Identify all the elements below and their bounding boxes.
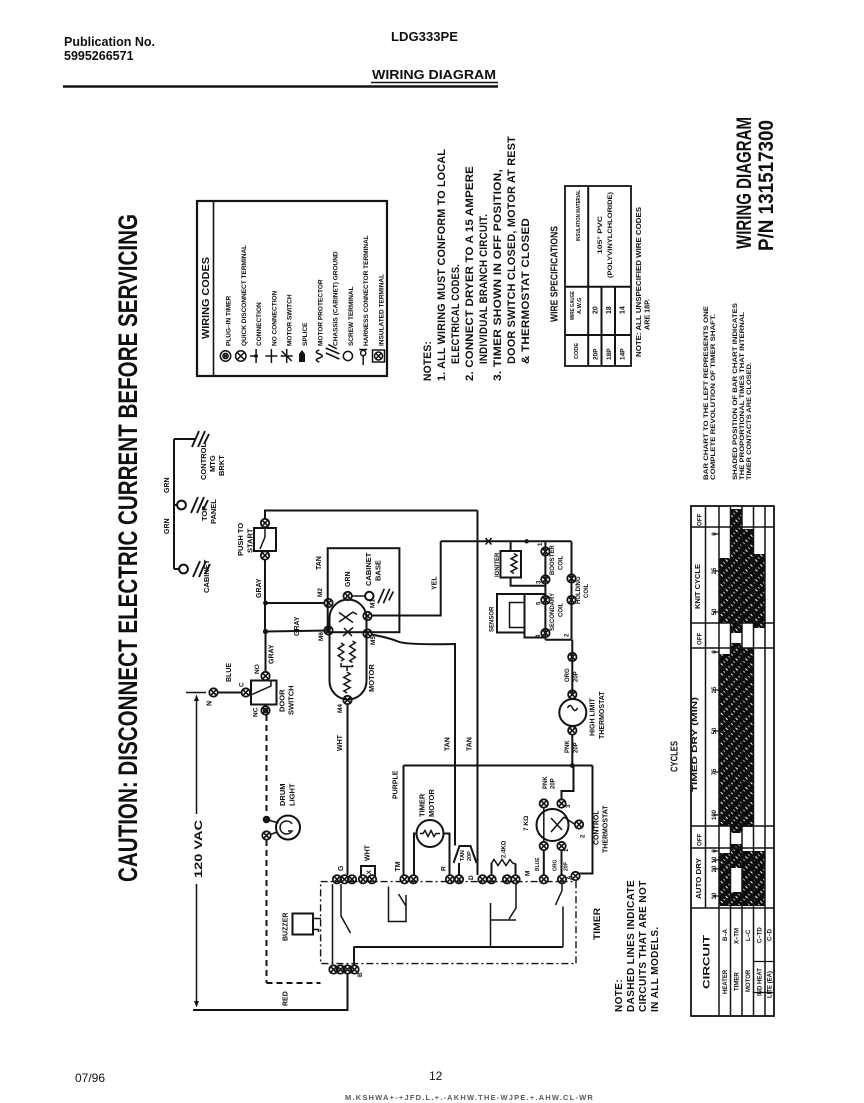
svg-text:HOLDING: HOLDING <box>576 576 582 604</box>
svg-text:HARNESS CONNECTOR TERMINAL: HARNESS CONNECTOR TERMINAL <box>363 235 370 346</box>
svg-text:A: A <box>567 875 574 880</box>
svg-text:M1: M1 <box>370 599 377 608</box>
svg-text:TIMER: TIMER <box>592 907 602 940</box>
svg-text:10: 10 <box>712 856 718 863</box>
svg-text:20P: 20P <box>574 742 580 753</box>
svg-text:BASE: BASE <box>374 560 383 581</box>
svg-text:TAN: TAN <box>467 737 474 751</box>
svg-text:MOTOR: MOTOR <box>746 969 752 992</box>
svg-text:PNK: PNK <box>543 776 549 789</box>
svg-text:20P: 20P <box>551 778 557 789</box>
svg-text:NOTE:: NOTE: <box>614 979 625 1012</box>
svg-text:20: 20 <box>712 865 718 872</box>
svg-text:BRKT: BRKT <box>217 455 226 476</box>
svg-text:R: R <box>441 866 448 871</box>
svg-text:DOOR: DOOR <box>278 689 287 712</box>
svg-text:NO: NO <box>254 664 261 674</box>
svg-text:MOTOR: MOTOR <box>427 789 436 817</box>
svg-text:INSULATED TERMINAL: INSULATED TERMINAL <box>379 274 386 346</box>
svg-text:14: 14 <box>620 306 627 314</box>
svg-text:20P: 20P <box>574 671 580 682</box>
svg-text:COIL: COIL <box>559 555 565 570</box>
svg-text:IND HEAT: IND HEAT <box>758 968 764 996</box>
svg-text:20: 20 <box>593 306 600 314</box>
svg-text:BLUE: BLUE <box>535 857 541 871</box>
svg-text:OFF: OFF <box>697 833 704 846</box>
svg-text:12: 12 <box>429 1069 443 1083</box>
svg-text:GRAY: GRAY <box>256 578 263 598</box>
svg-text:SHADED POSITION OF BAR CHART I: SHADED POSITION OF BAR CHART INDICATES <box>732 302 739 480</box>
svg-text:14P: 14P <box>620 348 627 360</box>
svg-text:BLUE: BLUE <box>226 663 233 682</box>
svg-text:SPLICE: SPLICE <box>302 322 309 346</box>
svg-text:C–TD: C–TD <box>758 927 764 943</box>
svg-text:RED: RED <box>283 991 290 1006</box>
svg-text:GRN: GRN <box>164 477 171 493</box>
svg-text:105° PVC: 105° PVC <box>598 215 604 254</box>
svg-text:M6: M6 <box>318 632 325 641</box>
svg-text:20P: 20P <box>593 348 600 360</box>
svg-text:CIRCUITS THAT ARE NOT: CIRCUITS THAT ARE NOT <box>638 880 649 1012</box>
svg-text:TIMED DRY (MIN): TIMED DRY (MIN) <box>692 697 699 792</box>
svg-text:N: N <box>207 701 214 706</box>
svg-text:MOTOR PROTECTOR: MOTOR PROTECTOR <box>317 279 324 346</box>
svg-text:BAR CHART TO THE LEFT REPRESEN: BAR CHART TO THE LEFT REPRESENTS ONE <box>703 305 710 480</box>
svg-text:BOOSTER: BOOSTER <box>550 545 556 575</box>
svg-text:MOTOR: MOTOR <box>367 664 376 692</box>
svg-text:20P: 20P <box>564 861 570 871</box>
svg-text:CIRCUIT: CIRCUIT <box>702 934 712 989</box>
svg-text:NOTES:: NOTES: <box>422 341 434 381</box>
svg-text:25: 25 <box>712 686 718 693</box>
svg-text:07/96: 07/96 <box>75 1071 105 1085</box>
svg-text:SENSOR: SENSOR <box>490 606 496 632</box>
svg-text:M2: M2 <box>317 588 324 597</box>
svg-text:M4: M4 <box>337 704 344 713</box>
svg-text:A.W.G: A.W.G <box>577 298 583 314</box>
svg-text:WIRE SPECIFICATIONS: WIRE SPECIFICATIONS <box>550 226 561 322</box>
svg-text:LDG333PE: LDG333PE <box>391 30 458 44</box>
svg-text:START: START <box>246 528 255 553</box>
svg-text:M5: M5 <box>370 636 377 645</box>
svg-text:2.4KΩ: 2.4KΩ <box>502 840 508 858</box>
svg-text:OFF: OFF <box>697 513 704 526</box>
svg-text:HIGH LIMIT: HIGH LIMIT <box>590 698 597 736</box>
svg-text:WIRING DIAGRAM: WIRING DIAGRAM <box>732 117 756 249</box>
svg-text:COMPLETE REVOLUTION OF TIMER S: COMPLETE REVOLUTION OF TIMER SHAFT. <box>710 314 717 480</box>
svg-text:MOTOR SWITCH: MOTOR SWITCH <box>287 294 294 346</box>
svg-text:X: X <box>366 870 373 875</box>
svg-text:CONNECTION: CONNECTION <box>256 302 263 346</box>
svg-text:ELECTRICAL CODES.: ELECTRICAL CODES. <box>450 264 462 364</box>
svg-text:PUSH TO: PUSH TO <box>236 523 245 556</box>
svg-text:L–C: L–C <box>746 929 752 941</box>
svg-text:18P: 18P <box>606 348 613 360</box>
svg-text:B–A: B–A <box>723 928 729 941</box>
svg-text:OFF: OFF <box>697 632 704 645</box>
svg-text:Publication No.: Publication No. <box>64 35 155 49</box>
svg-text:BUZZER: BUZZER <box>283 913 290 941</box>
svg-text:M: M <box>525 871 532 876</box>
svg-text:120 VAC: 120 VAC <box>193 820 205 878</box>
svg-text:SWITCH: SWITCH <box>287 685 296 715</box>
svg-text:P/N 131517300: P/N 131517300 <box>754 120 778 251</box>
svg-text:X–TM: X–TM <box>735 928 741 944</box>
svg-text:CAUTION: DISCONNECT ELECTRIC: CAUTION: DISCONNECT ELECTRIC CURRENT BEF… <box>113 214 143 882</box>
svg-text:CODE: CODE <box>574 343 580 359</box>
svg-text:HEATER: HEATER <box>723 969 729 994</box>
svg-text:(POLYVINYLCHLORIDE): (POLYVINYLCHLORIDE) <box>608 192 614 278</box>
svg-text:TIMER: TIMER <box>735 972 741 991</box>
svg-text:20P: 20P <box>467 851 473 861</box>
svg-text:25: 25 <box>712 567 718 574</box>
svg-text:2. CONNECT DRYER TO A 15 AMPER: 2. CONNECT DRYER TO A 15 AMPERE <box>464 166 476 381</box>
svg-text:7 KΩ: 7 KΩ <box>523 816 530 831</box>
svg-text:QUICK DISCONNECT TERMINAL: QUICK DISCONNECT TERMINAL <box>241 245 248 346</box>
svg-text:ARE 18P.: ARE 18P. <box>643 299 652 330</box>
svg-text:LITE (EA): LITE (EA) <box>768 971 774 998</box>
svg-text:NOTE: ALL UNSPECIFIED WIRE COD: NOTE: ALL UNSPECIFIED WIRE CODES <box>634 207 643 357</box>
svg-text:GRAY: GRAY <box>294 616 301 636</box>
svg-text:NO CONNECTION: NO CONNECTION <box>271 290 278 346</box>
svg-text:B: B <box>357 972 364 977</box>
svg-text:DASHED LINES INDICATE: DASHED LINES INDICATE <box>626 880 637 1012</box>
svg-text:DRUM: DRUM <box>278 784 287 807</box>
svg-text:50: 50 <box>712 727 718 734</box>
svg-text:ORG: ORG <box>565 668 571 682</box>
svg-text:75: 75 <box>712 768 718 775</box>
svg-text:LIGHT: LIGHT <box>288 783 297 806</box>
svg-text:GRAY: GRAY <box>269 644 276 664</box>
svg-text:TAN: TAN <box>445 737 452 751</box>
svg-text:CYCLES: CYCLES <box>670 741 681 772</box>
svg-text:PNK: PNK <box>565 740 571 753</box>
svg-text:GRN: GRN <box>164 518 171 534</box>
svg-text:SECONDARY: SECONDARY <box>550 593 556 631</box>
svg-text:TAN: TAN <box>460 850 466 861</box>
svg-text:TM: TM <box>395 861 402 871</box>
svg-text:MTG: MTG <box>208 455 217 472</box>
svg-text:100: 100 <box>712 809 718 820</box>
svg-text:& THERMOSTAT CLOSED: & THERMOSTAT CLOSED <box>520 218 532 364</box>
svg-text:SCREW TERMINAL: SCREW TERMINAL <box>348 286 355 346</box>
svg-text:30: 30 <box>712 892 718 899</box>
svg-text:COIL: COIL <box>584 583 590 598</box>
svg-text:TIMER: TIMER <box>418 793 427 817</box>
svg-text:TAN: TAN <box>316 556 323 570</box>
svg-text:AUTO DRY: AUTO DRY <box>696 858 703 899</box>
svg-text:PANEL: PANEL <box>209 499 218 524</box>
svg-text:D: D <box>468 875 475 880</box>
svg-text:M.KSHWA+-+JFD.L.+.-AKHW.THE-WJ: M.KSHWA+-+JFD.L.+.-AKHW.THE-WJPE.+.AHW.C… <box>345 1093 594 1102</box>
svg-text:TIMER CONTACTS ARE CLOSED.: TIMER CONTACTS ARE CLOSED. <box>746 362 753 480</box>
svg-text:PLUG–IN TIMER: PLUG–IN TIMER <box>226 295 233 346</box>
svg-text:THE PROPORTIONAL TIMES THAT IN: THE PROPORTIONAL TIMES THAT INTERNAL <box>739 312 746 480</box>
svg-text:TOP: TOP <box>200 506 209 521</box>
svg-text:KNIT CYCLE: KNIT CYCLE <box>695 564 702 609</box>
svg-text:C: C <box>239 682 246 687</box>
svg-text:CONTROL: CONTROL <box>199 443 208 480</box>
svg-text:G: G <box>338 865 345 871</box>
svg-text:INSULATION MATERIAL: INSULATION MATERIAL <box>576 190 582 241</box>
svg-text:CHASSIS (CABINET) GROUND: CHASSIS (CABINET) GROUND <box>333 251 340 346</box>
svg-text:WHT: WHT <box>337 734 344 751</box>
svg-text:WIRING DIAGRAM: WIRING DIAGRAM <box>372 68 496 82</box>
svg-text:IN ALL MODELS.: IN ALL MODELS. <box>650 926 661 1012</box>
svg-text:INDIVIDUAL BRANCH CIRCUIT.: INDIVIDUAL BRANCH CIRCUIT. <box>478 214 490 364</box>
svg-text:THERMOSTAT: THERMOSTAT <box>599 691 606 739</box>
svg-text:50: 50 <box>712 608 718 615</box>
svg-text:DOOR SWITCH CLOSED, MOTOR AT R: DOOR SWITCH CLOSED, MOTOR AT REST <box>506 136 518 364</box>
svg-text:THERMOSTAT: THERMOSTAT <box>603 805 610 853</box>
svg-text:COIL: COIL <box>559 602 565 617</box>
svg-text:ORG: ORG <box>553 860 559 872</box>
svg-text:CONTROL: CONTROL <box>594 810 601 845</box>
svg-text:C–D: C–D <box>768 928 774 941</box>
svg-text:5995266571: 5995266571 <box>64 49 134 63</box>
svg-text:3. TIMER SHOWN IN OFF POSITION: 3. TIMER SHOWN IN OFF POSITION, <box>492 169 504 381</box>
svg-text:CABINET: CABINET <box>364 552 373 586</box>
svg-text:GRN: GRN <box>345 571 352 587</box>
svg-text:CABINET: CABINET <box>202 559 211 593</box>
svg-text:WHT: WHT <box>365 844 372 861</box>
svg-text:1. ALL WIRING MUST CONFORM TO: 1. ALL WIRING MUST CONFORM TO LOCAL <box>436 149 448 381</box>
svg-text:WIRING CODES: WIRING CODES <box>200 257 212 339</box>
svg-text:18: 18 <box>606 306 613 314</box>
svg-text:YEL: YEL <box>432 576 439 590</box>
svg-text:NC: NC <box>253 707 260 717</box>
svg-text:WIRE GAUGE: WIRE GAUGE <box>570 291 576 320</box>
svg-text:PURPLE: PURPLE <box>393 770 400 799</box>
